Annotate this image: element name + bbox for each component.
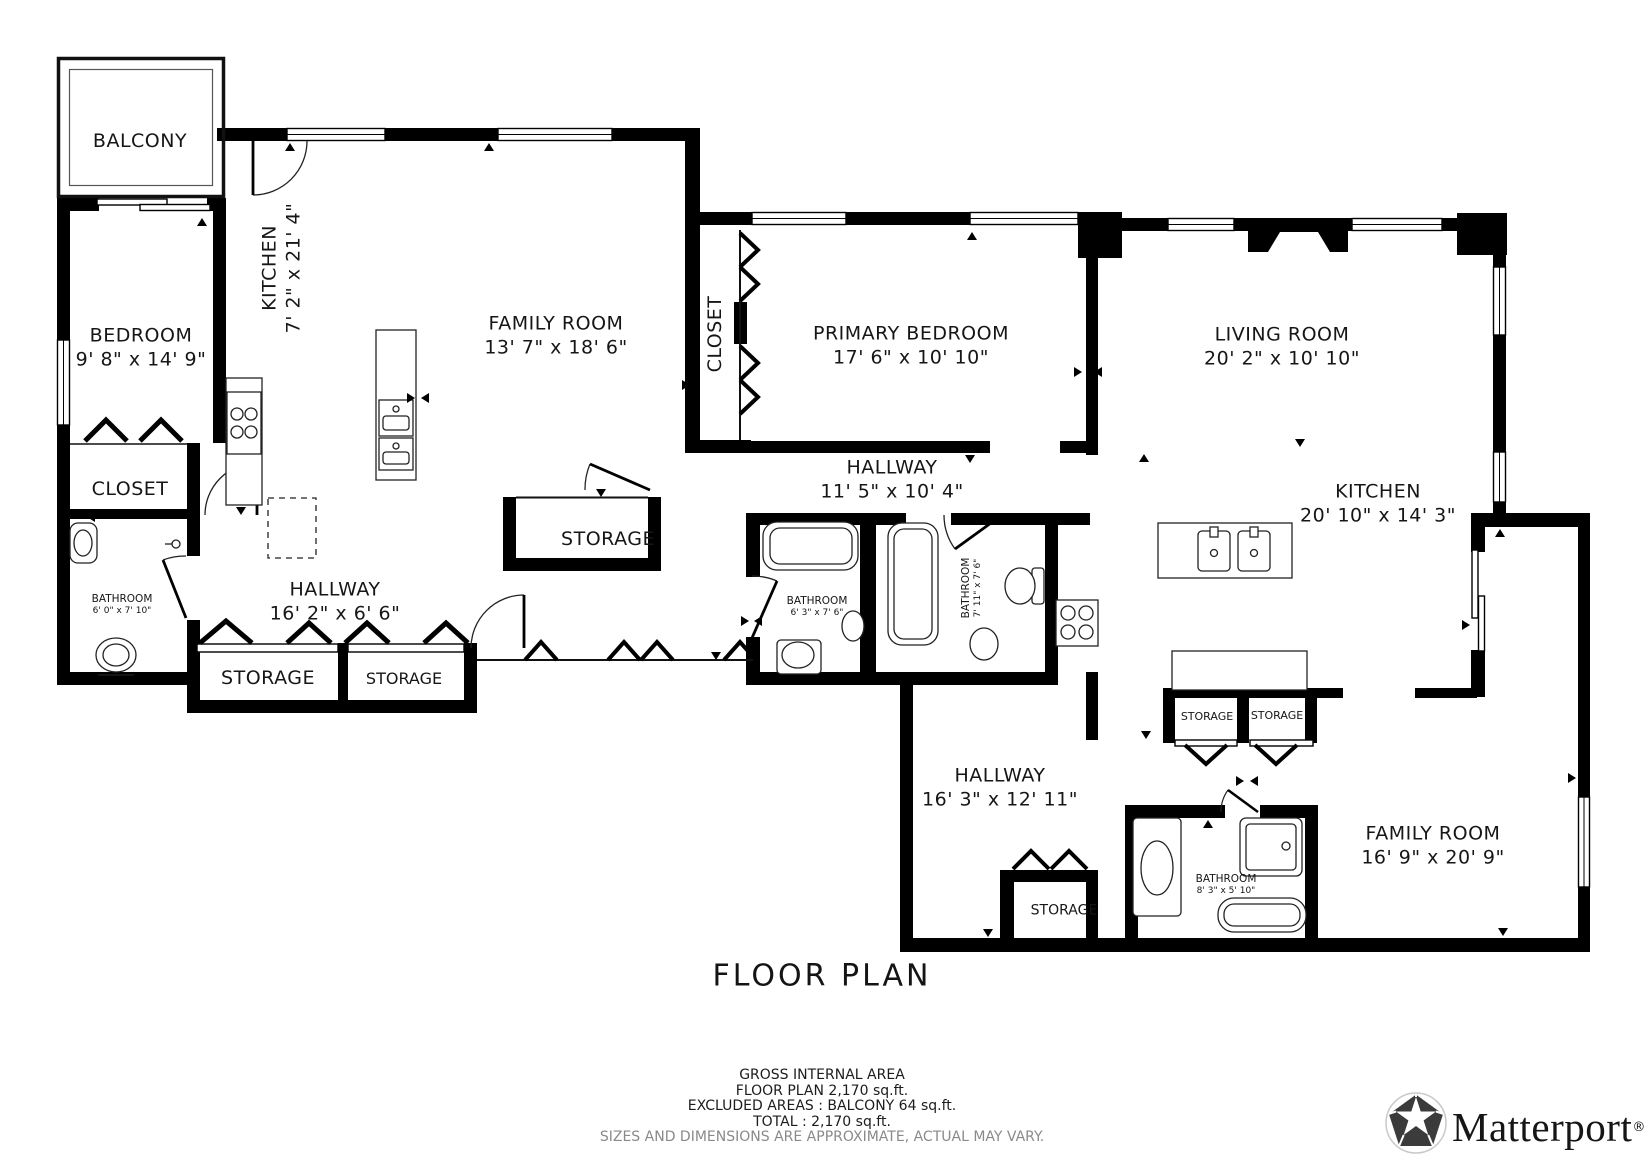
room-label-storage-bottom: STORAGE	[1031, 902, 1098, 920]
sink-icon	[970, 628, 998, 660]
room-label-storage-small-2: STORAGE	[1251, 709, 1303, 723]
room-label-primary-bedroom: PRIMARY BEDROOM 17' 6" x 10' 10"	[813, 322, 1009, 370]
footer-area-summary: GROSS INTERNAL AREA FLOOR PLAN 2,170 sq.…	[600, 1068, 1044, 1146]
room-label-hallway-lower: HALLWAY 16' 3" x 12' 11"	[922, 764, 1078, 812]
room-label-storage-mid: STORAGE	[561, 528, 655, 552]
faucet-icon	[172, 540, 180, 548]
room-label-balcony: BALCONY	[93, 130, 187, 154]
room-label-kitchen-left: KITCHEN 7' 2" x 21' 4"	[258, 203, 306, 334]
appliance-dashed-icon	[268, 498, 316, 558]
footer-line-floorplan: FLOOR PLAN 2,170 sq.ft.	[600, 1084, 1044, 1100]
registered-mark: ®	[1632, 1120, 1645, 1135]
matterport-wordmark: Matterport®	[1452, 1103, 1645, 1151]
counter-icon	[1172, 651, 1307, 690]
stove-icon	[1056, 600, 1098, 646]
room-label-bedroom: BEDROOM 9' 8" x 14' 9"	[76, 324, 207, 372]
room-label-living-room: LIVING ROOM 20' 2" x 10' 10"	[1204, 323, 1360, 371]
room-label-kitchen-right: KITCHEN 20' 10" x 14' 3"	[1300, 480, 1456, 528]
floor-plan-page: BALCONY BEDROOM 9' 8" x 14' 9" KITCHEN 7…	[0, 0, 1647, 1164]
stove-icon	[227, 392, 261, 454]
room-label-storage-left-2: STORAGE	[366, 669, 442, 689]
room-label-storage-small-1: STORAGE	[1181, 710, 1233, 724]
brand-name: Matterport	[1452, 1103, 1632, 1151]
matterport-logo-icon	[1386, 1093, 1446, 1153]
footer-line-gross: GROSS INTERNAL AREA	[600, 1068, 1044, 1084]
footer-line-total: TOTAL : 2,170 sq.ft.	[600, 1115, 1044, 1131]
room-label-bathroom-mid-2: BATHROOM 7' 11" x 7' 6"	[960, 558, 984, 619]
footer-line-excluded: EXCLUDED AREAS : BALCONY 64 sq.ft.	[600, 1099, 1044, 1115]
room-label-family-room-br: FAMILY ROOM 16' 9" x 20' 9"	[1361, 822, 1504, 870]
room-label-storage-left-1: STORAGE	[221, 667, 315, 691]
footer-disclaimer: SIZES AND DIMENSIONS ARE APPROXIMATE, AC…	[600, 1130, 1044, 1146]
room-label-closet-left: CLOSET	[92, 478, 169, 502]
room-label-hallway-mid: HALLWAY 11' 5" x 10' 4"	[820, 456, 963, 504]
page-title: FLOOR PLAN	[713, 959, 932, 994]
room-label-bathroom-bottom: BATHROOM 8' 3" x 5' 10"	[1196, 873, 1257, 897]
room-label-family-room: FAMILY ROOM 13' 7" x 18' 6"	[484, 312, 627, 360]
room-label-hallway-left: HALLWAY 16' 2" x 6' 6"	[270, 578, 401, 626]
room-label-closet-primary: CLOSET	[704, 296, 728, 373]
room-label-bathroom-left: BATHROOM 6' 0" x 7' 10"	[92, 593, 153, 617]
room-label-bathroom-mid-1: BATHROOM 6' 3" x 7' 6"	[787, 595, 848, 619]
